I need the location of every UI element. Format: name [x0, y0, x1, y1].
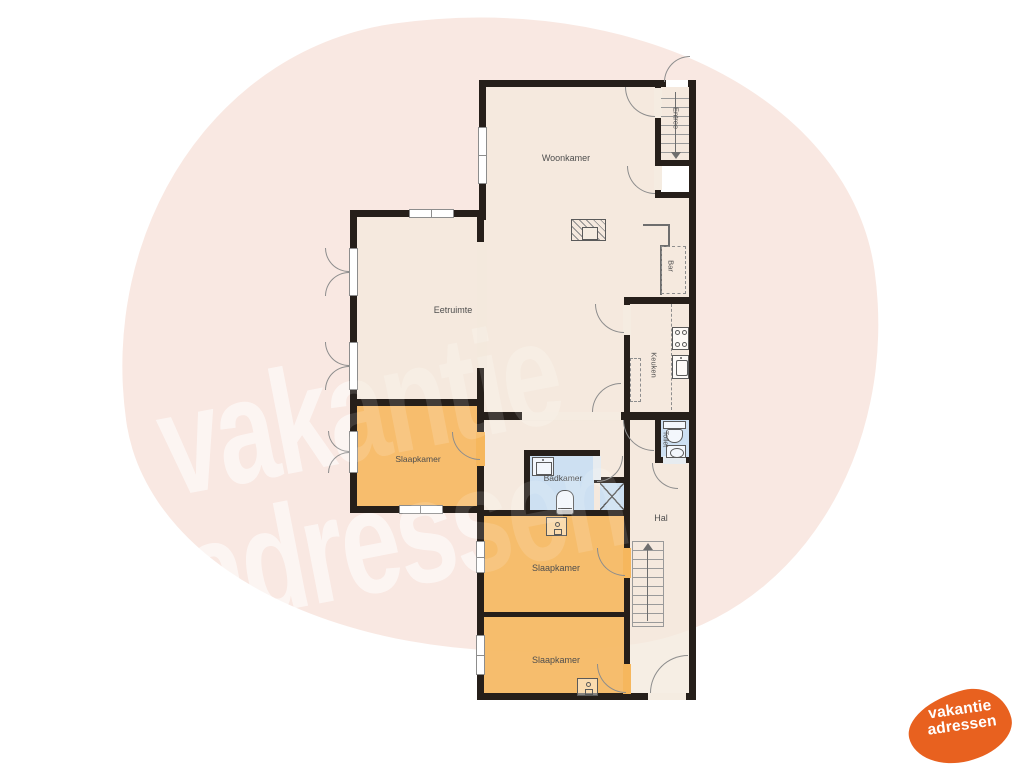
wall-segment	[686, 693, 696, 700]
fireplace-inner	[582, 227, 598, 240]
wall-segment	[655, 412, 661, 463]
shower	[600, 483, 624, 510]
label-hal: Hal	[654, 513, 668, 523]
stairs-arrow-down-icon	[671, 152, 681, 159]
window	[399, 505, 443, 514]
label-eetruimte: Eetruimte	[434, 305, 473, 315]
window	[476, 635, 485, 675]
french-door-leaf	[349, 342, 358, 390]
stairs-arrow-up-icon	[643, 543, 653, 550]
wall-segment	[524, 450, 530, 516]
label-slaapkamer-left: Slaapkamer	[395, 454, 440, 464]
window	[476, 541, 485, 573]
window	[478, 127, 487, 184]
wall-segment	[477, 412, 522, 420]
wall-segment	[477, 210, 484, 242]
french-door-leaf	[349, 248, 358, 296]
label-keuken: Keuken	[650, 352, 659, 377]
wall-segment	[477, 510, 630, 516]
vakantieadressen-logo: vakantie adressen	[900, 688, 1022, 768]
label-bar: Bar	[667, 260, 676, 272]
french-door	[328, 452, 349, 473]
label-woonkamer: Woonkamer	[542, 153, 590, 163]
door-opening	[522, 412, 621, 420]
wall-segment	[477, 612, 630, 617]
door-opening	[648, 693, 686, 700]
stove	[672, 327, 689, 350]
closet	[660, 165, 692, 194]
french-door	[325, 342, 349, 366]
wall-segment	[624, 297, 696, 304]
french-door	[325, 248, 349, 272]
bathroom-toilet	[556, 490, 574, 515]
label-toilet: Toilet	[662, 431, 669, 447]
label-slaapkamer-bottom: Slaapkamer	[532, 655, 580, 665]
bedroom-sink	[577, 678, 598, 696]
wall-segment	[350, 399, 482, 406]
wall-segment	[621, 412, 630, 420]
kitchen-counter-corner	[630, 358, 641, 402]
door-opening	[654, 166, 662, 190]
french-door	[325, 272, 349, 296]
toilet-tank	[663, 421, 686, 429]
wall-segment	[524, 450, 600, 456]
wall-segment	[689, 80, 696, 700]
toilet-sink	[666, 445, 686, 458]
door-opening	[623, 305, 631, 335]
wall-segment	[479, 693, 648, 700]
wall-segment	[655, 192, 696, 198]
kitchen-sink	[672, 355, 689, 379]
passage-eetruimte-woonkamer	[477, 242, 487, 368]
french-door	[325, 366, 349, 390]
window	[409, 209, 454, 218]
entree-exterior-door	[664, 56, 690, 82]
french-door-leaf	[349, 431, 358, 473]
floor-plan: Woonkamer Eetruimte Slaapkamer Badkamer …	[0, 0, 1024, 768]
label-slaapkamer-mid: Slaapkamer	[532, 563, 580, 573]
bedroom-sink	[546, 517, 567, 536]
label-badkamer: Badkamer	[544, 473, 583, 483]
label-entree: Entree	[672, 107, 681, 129]
french-door	[328, 431, 349, 452]
